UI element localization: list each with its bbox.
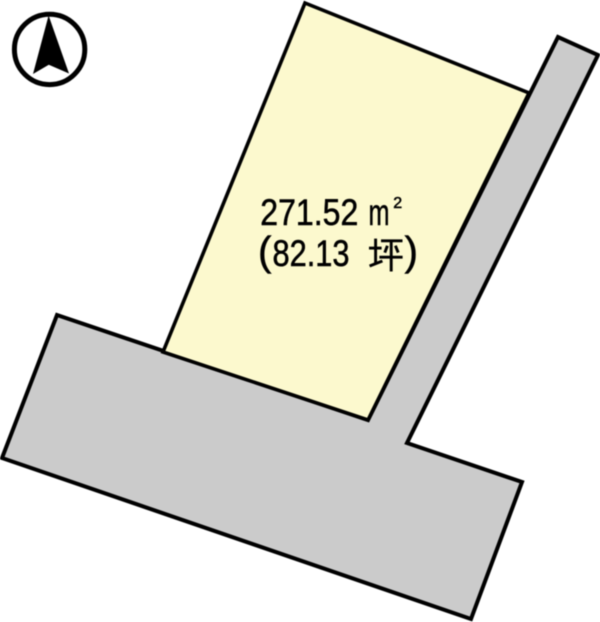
svg-text:m: m <box>369 192 390 233</box>
svg-text:): ) <box>405 228 419 274</box>
svg-text:271.52: 271.52 <box>260 192 358 233</box>
svg-text:(: ( <box>258 228 272 274</box>
svg-text:2: 2 <box>393 195 402 212</box>
svg-text:82.13: 82.13 <box>273 233 350 274</box>
